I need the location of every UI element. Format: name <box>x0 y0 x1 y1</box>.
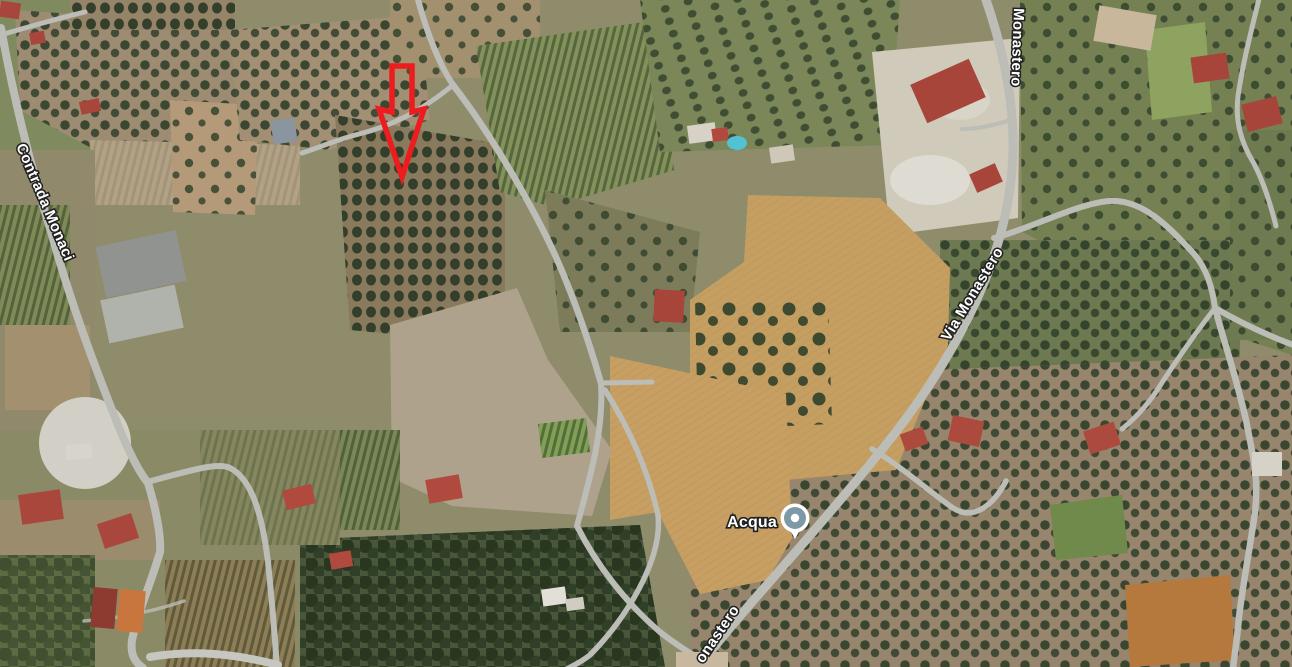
road-label-monastero-top: Monastero <box>1007 8 1027 87</box>
satellite-map: Contrada Monaci Monastero Via Monastero … <box>0 0 1292 667</box>
poi-label-acqua[interactable]: Acqua <box>727 514 777 531</box>
terrain-layer <box>0 0 1292 667</box>
road-east-stub <box>601 382 652 383</box>
map-canvas[interactable]: Contrada Monaci Monastero Via Monastero … <box>0 0 1292 667</box>
